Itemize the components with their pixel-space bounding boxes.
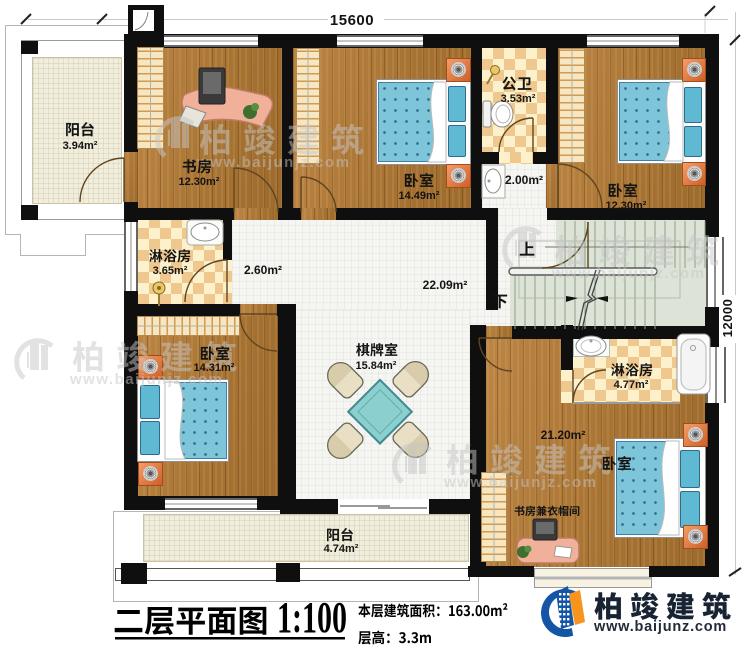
svg-text:www.baijunz.com: www.baijunz.com bbox=[593, 619, 727, 635]
svg-text:15600: 15600 bbox=[330, 12, 374, 29]
svg-text:3.65m²: 3.65m² bbox=[153, 265, 188, 277]
svg-text:15.84m²: 15.84m² bbox=[356, 360, 397, 372]
svg-text:14.49m²: 14.49m² bbox=[399, 190, 440, 202]
svg-text:22.09m²: 22.09m² bbox=[423, 278, 468, 292]
svg-text:12000: 12000 bbox=[720, 299, 735, 338]
svg-text:12.30m²: 12.30m² bbox=[606, 200, 647, 212]
svg-text:14.31m²: 14.31m² bbox=[194, 362, 235, 374]
svg-text:2.60m²: 2.60m² bbox=[244, 263, 282, 277]
svg-text:www.baijunjz.com: www.baijunjz.com bbox=[443, 474, 597, 491]
svg-text:12.30m²: 12.30m² bbox=[179, 176, 220, 188]
svg-text:4.77m²: 4.77m² bbox=[614, 379, 649, 391]
svg-text:4.74m²: 4.74m² bbox=[324, 543, 359, 555]
svg-text:www.baijunjz.com: www.baijunjz.com bbox=[551, 265, 705, 282]
svg-text:2.00m²: 2.00m² bbox=[505, 173, 543, 187]
svg-text:1:100: 1:100 bbox=[277, 593, 347, 642]
svg-text:3.53m²: 3.53m² bbox=[501, 93, 536, 105]
svg-text:www.baijunjz.com: www.baijunjz.com bbox=[196, 154, 350, 171]
svg-text:21.20m²: 21.20m² bbox=[541, 428, 586, 442]
svg-text:3.94m²: 3.94m² bbox=[63, 140, 98, 152]
